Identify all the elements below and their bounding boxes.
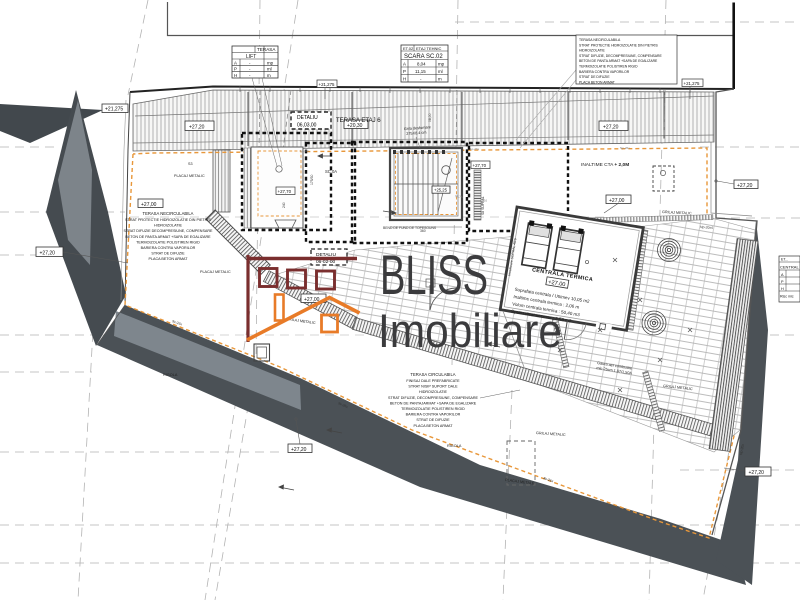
svg-text:BLISS: BLISS xyxy=(380,243,488,306)
svg-text:mp: mp xyxy=(438,62,445,67)
svg-text:1p-26x: 1p-26x xyxy=(300,149,310,153)
svg-text:S3: S3 xyxy=(188,162,193,166)
svg-text:DETALIU: DETALIU xyxy=(297,115,318,121)
svg-text:BARIERA CONTRA VAPORILOR: BARIERA CONTRA VAPORILOR xyxy=(579,70,630,74)
svg-text:H: H xyxy=(403,77,406,82)
svg-text:1p-26x: 1p-26x xyxy=(470,147,480,151)
svg-text:STRAT DE DIFUZIE: STRAT DE DIFUZIE xyxy=(579,75,610,79)
svg-text:HIDROIZOLATIE: HIDROIZOLATIE xyxy=(154,224,183,228)
svg-text:STRAT PROTECTIE HIDROIZOLATIE: STRAT PROTECTIE HIDROIZOLATIE DIN PIETRI… xyxy=(125,218,211,222)
svg-text:BARIERA CONTRA VAPORILOR: BARIERA CONTRA VAPORILOR xyxy=(406,413,461,417)
svg-text:Np-26x: Np-26x xyxy=(620,146,630,150)
svg-text:m: m xyxy=(267,73,271,78)
svg-text:TERASA NECIRCULABILA: TERASA NECIRCULABILA xyxy=(579,38,621,42)
svg-text:HIDROIZOLATIE: HIDROIZOLATIE xyxy=(419,390,448,394)
svg-text:CENTRAL: CENTRAL xyxy=(780,265,799,270)
svg-text:TERASA ETAJ 6: TERASA ETAJ 6 xyxy=(336,118,381,124)
svg-text:PLACA BETON ARMAT: PLACA BETON ARMAT xyxy=(413,424,453,428)
svg-text:STRAT DE DIFUZIE: STRAT DE DIFUZIE xyxy=(151,252,185,256)
svg-text:11,15: 11,15 xyxy=(415,69,426,74)
svg-text:STRAT DIFUZIE, DECOMPRESIUNE,: STRAT DIFUZIE, DECOMPRESIUNE, COMPENSARE xyxy=(579,54,663,58)
svg-text:PLACAJ METALIC: PLACAJ METALIC xyxy=(174,174,205,178)
svg-text:8,04: 8,04 xyxy=(417,62,426,67)
svg-text:ET.02: ET.02 xyxy=(403,46,414,51)
svg-text:+25,25: +25,25 xyxy=(434,188,448,193)
svg-text:ETAJ TEHNIC: ETAJ TEHNIC xyxy=(416,46,442,51)
svg-text:TERASA CIRCULABILA: TERASA CIRCULABILA xyxy=(410,372,455,377)
svg-text:S8 SUPRAL: S8 SUPRAL xyxy=(481,196,485,215)
svg-text:HIDROIZOLATIE: HIDROIZOLATIE xyxy=(579,49,605,53)
svg-text:LIFT: LIFT xyxy=(246,54,256,60)
svg-text:STRAT NISIP SUPORT DALE: STRAT NISIP SUPORT DALE xyxy=(408,385,458,389)
svg-text:SC.0A: SC.0A xyxy=(325,169,337,174)
svg-text:STRAT DIFUZIE, DECOMPRESIUNE,: STRAT DIFUZIE, DECOMPRESIUNE, COMPENSARE xyxy=(388,396,479,400)
svg-text:+27,20: +27,20 xyxy=(291,447,307,453)
svg-text:ml: ml xyxy=(438,69,443,74)
svg-text:STRAT DIFUZIE DECOMPRESIUNE, C: STRAT DIFUZIE DECOMPRESIUNE, COMPENSARE xyxy=(124,229,214,233)
svg-text:Risc mic: Risc mic xyxy=(780,295,794,299)
svg-text:BETON DE PANTAJARMAT +SAPA DE: BETON DE PANTAJARMAT +SAPA DE EGALIZARE xyxy=(390,401,477,405)
svg-text:TERMOIZOLATIE POLISTIREN RIGID: TERMOIZOLATIE POLISTIREN RIGID xyxy=(579,65,638,69)
svg-text:BEND DE FUND DE TOPESOUNS: BEND DE FUND DE TOPESOUNS xyxy=(383,226,437,230)
svg-text:TERASA: TERASA xyxy=(257,47,276,52)
svg-text:PLACA BETON ARMAT: PLACA BETON ARMAT xyxy=(579,80,615,84)
svg-text:ET...: ET... xyxy=(781,258,788,262)
svg-text:RIGOLA: RIGOLA xyxy=(163,373,178,377)
svg-text:SCARA SC.02: SCARA SC.02 xyxy=(404,54,443,60)
svg-text:TERMOIZOLATIE POLISTIREN RIGID: TERMOIZOLATIE POLISTIREN RIGID xyxy=(401,407,465,411)
svg-text:TERASA NECIRCULABILA: TERASA NECIRCULABILA xyxy=(143,211,194,216)
svg-text:BETON DE PANTA ARMAT +SAPA DE: BETON DE PANTA ARMAT +SAPA DE EGALIZARE xyxy=(579,59,658,63)
svg-text:A: A xyxy=(234,60,237,65)
svg-text:STRAT PROTECTIE HIDROIZOLATIE: STRAT PROTECTIE HIDROIZOLATIE DIN PIETRI… xyxy=(579,43,658,47)
svg-text:P: P xyxy=(403,69,406,74)
svg-text:PLACA BETON ARMAT: PLACA BETON ARMAT xyxy=(148,257,188,261)
svg-text:H: H xyxy=(234,73,237,78)
svg-text:+27,20: +27,20 xyxy=(737,183,753,189)
svg-text:+27,20: +27,20 xyxy=(603,124,619,130)
svg-text:TERMOIZOLATIE POLISTIREN RIGID: TERMOIZOLATIE POLISTIREN RIGID xyxy=(136,240,200,244)
svg-text:+21,275: +21,275 xyxy=(105,107,123,113)
svg-text:H: H xyxy=(781,287,784,291)
svg-text:Imobiliare: Imobiliare xyxy=(378,304,562,357)
svg-text:BARIERA CONTRA VAPORILOR: BARIERA CONTRA VAPORILOR xyxy=(141,246,196,250)
svg-text:240: 240 xyxy=(282,202,286,208)
svg-text:PLACAJ METALIC: PLACAJ METALIC xyxy=(200,270,231,274)
svg-text:m: m xyxy=(438,77,442,82)
svg-text:mp: mp xyxy=(267,60,274,65)
svg-text:ml: ml xyxy=(267,67,272,72)
svg-text:+27,70: +27,70 xyxy=(278,189,292,194)
svg-text:175/30: 175/30 xyxy=(310,175,314,185)
svg-text:+27,70: +27,70 xyxy=(473,163,487,168)
svg-text:FINISAJ DALE PREFABRICATE: FINISAJ DALE PREFABRICATE xyxy=(406,379,460,383)
svg-text:06,03,00: 06,03,00 xyxy=(297,123,317,129)
svg-text:+27,20: +27,20 xyxy=(189,124,205,130)
svg-text:+21,275: +21,275 xyxy=(684,81,701,86)
svg-text:+27,20: +27,20 xyxy=(749,470,765,476)
svg-text:+27,00: +27,00 xyxy=(141,202,157,208)
svg-text:P: P xyxy=(234,67,237,72)
svg-text:+27,20: +27,20 xyxy=(40,250,56,256)
svg-text:A: A xyxy=(403,62,406,67)
svg-text:STRAT DE DIFUZIE: STRAT DE DIFUZIE xyxy=(416,418,450,422)
svg-text:+21,275: +21,275 xyxy=(319,82,336,87)
svg-text:RIGOLA: RIGOLA xyxy=(447,444,462,448)
svg-text:08,00: 08,00 xyxy=(428,113,432,122)
svg-text:INALTIME CTA + 2,0M: INALTIME CTA + 2,0M xyxy=(581,162,629,168)
svg-text:+27,00: +27,00 xyxy=(609,198,625,204)
svg-text:BETON DE PANTA ARMAT +SAPA DE: BETON DE PANTA ARMAT +SAPA DE EGALIZARE xyxy=(125,235,211,239)
